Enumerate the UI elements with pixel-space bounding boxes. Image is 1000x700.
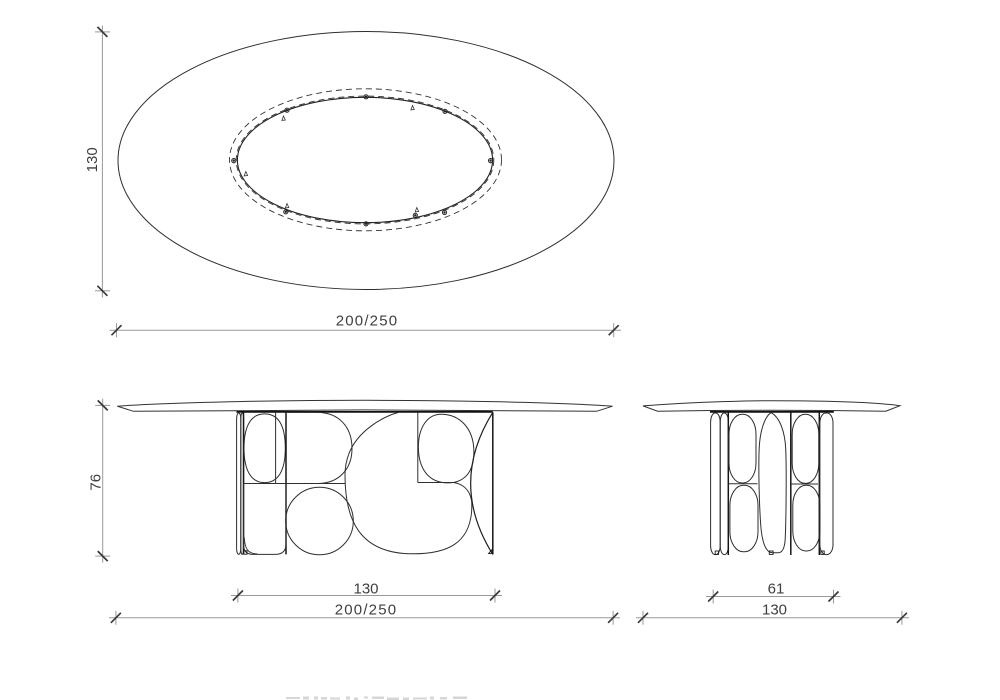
svg-text:130: 130 (353, 581, 378, 598)
svg-text:130: 130 (762, 601, 787, 618)
svg-text:76: 76 (87, 474, 104, 491)
svg-text:200/250: 200/250 (336, 313, 399, 330)
svg-text:130: 130 (84, 147, 101, 172)
svg-text:61: 61 (768, 581, 785, 598)
svg-text:200/250: 200/250 (335, 601, 398, 618)
